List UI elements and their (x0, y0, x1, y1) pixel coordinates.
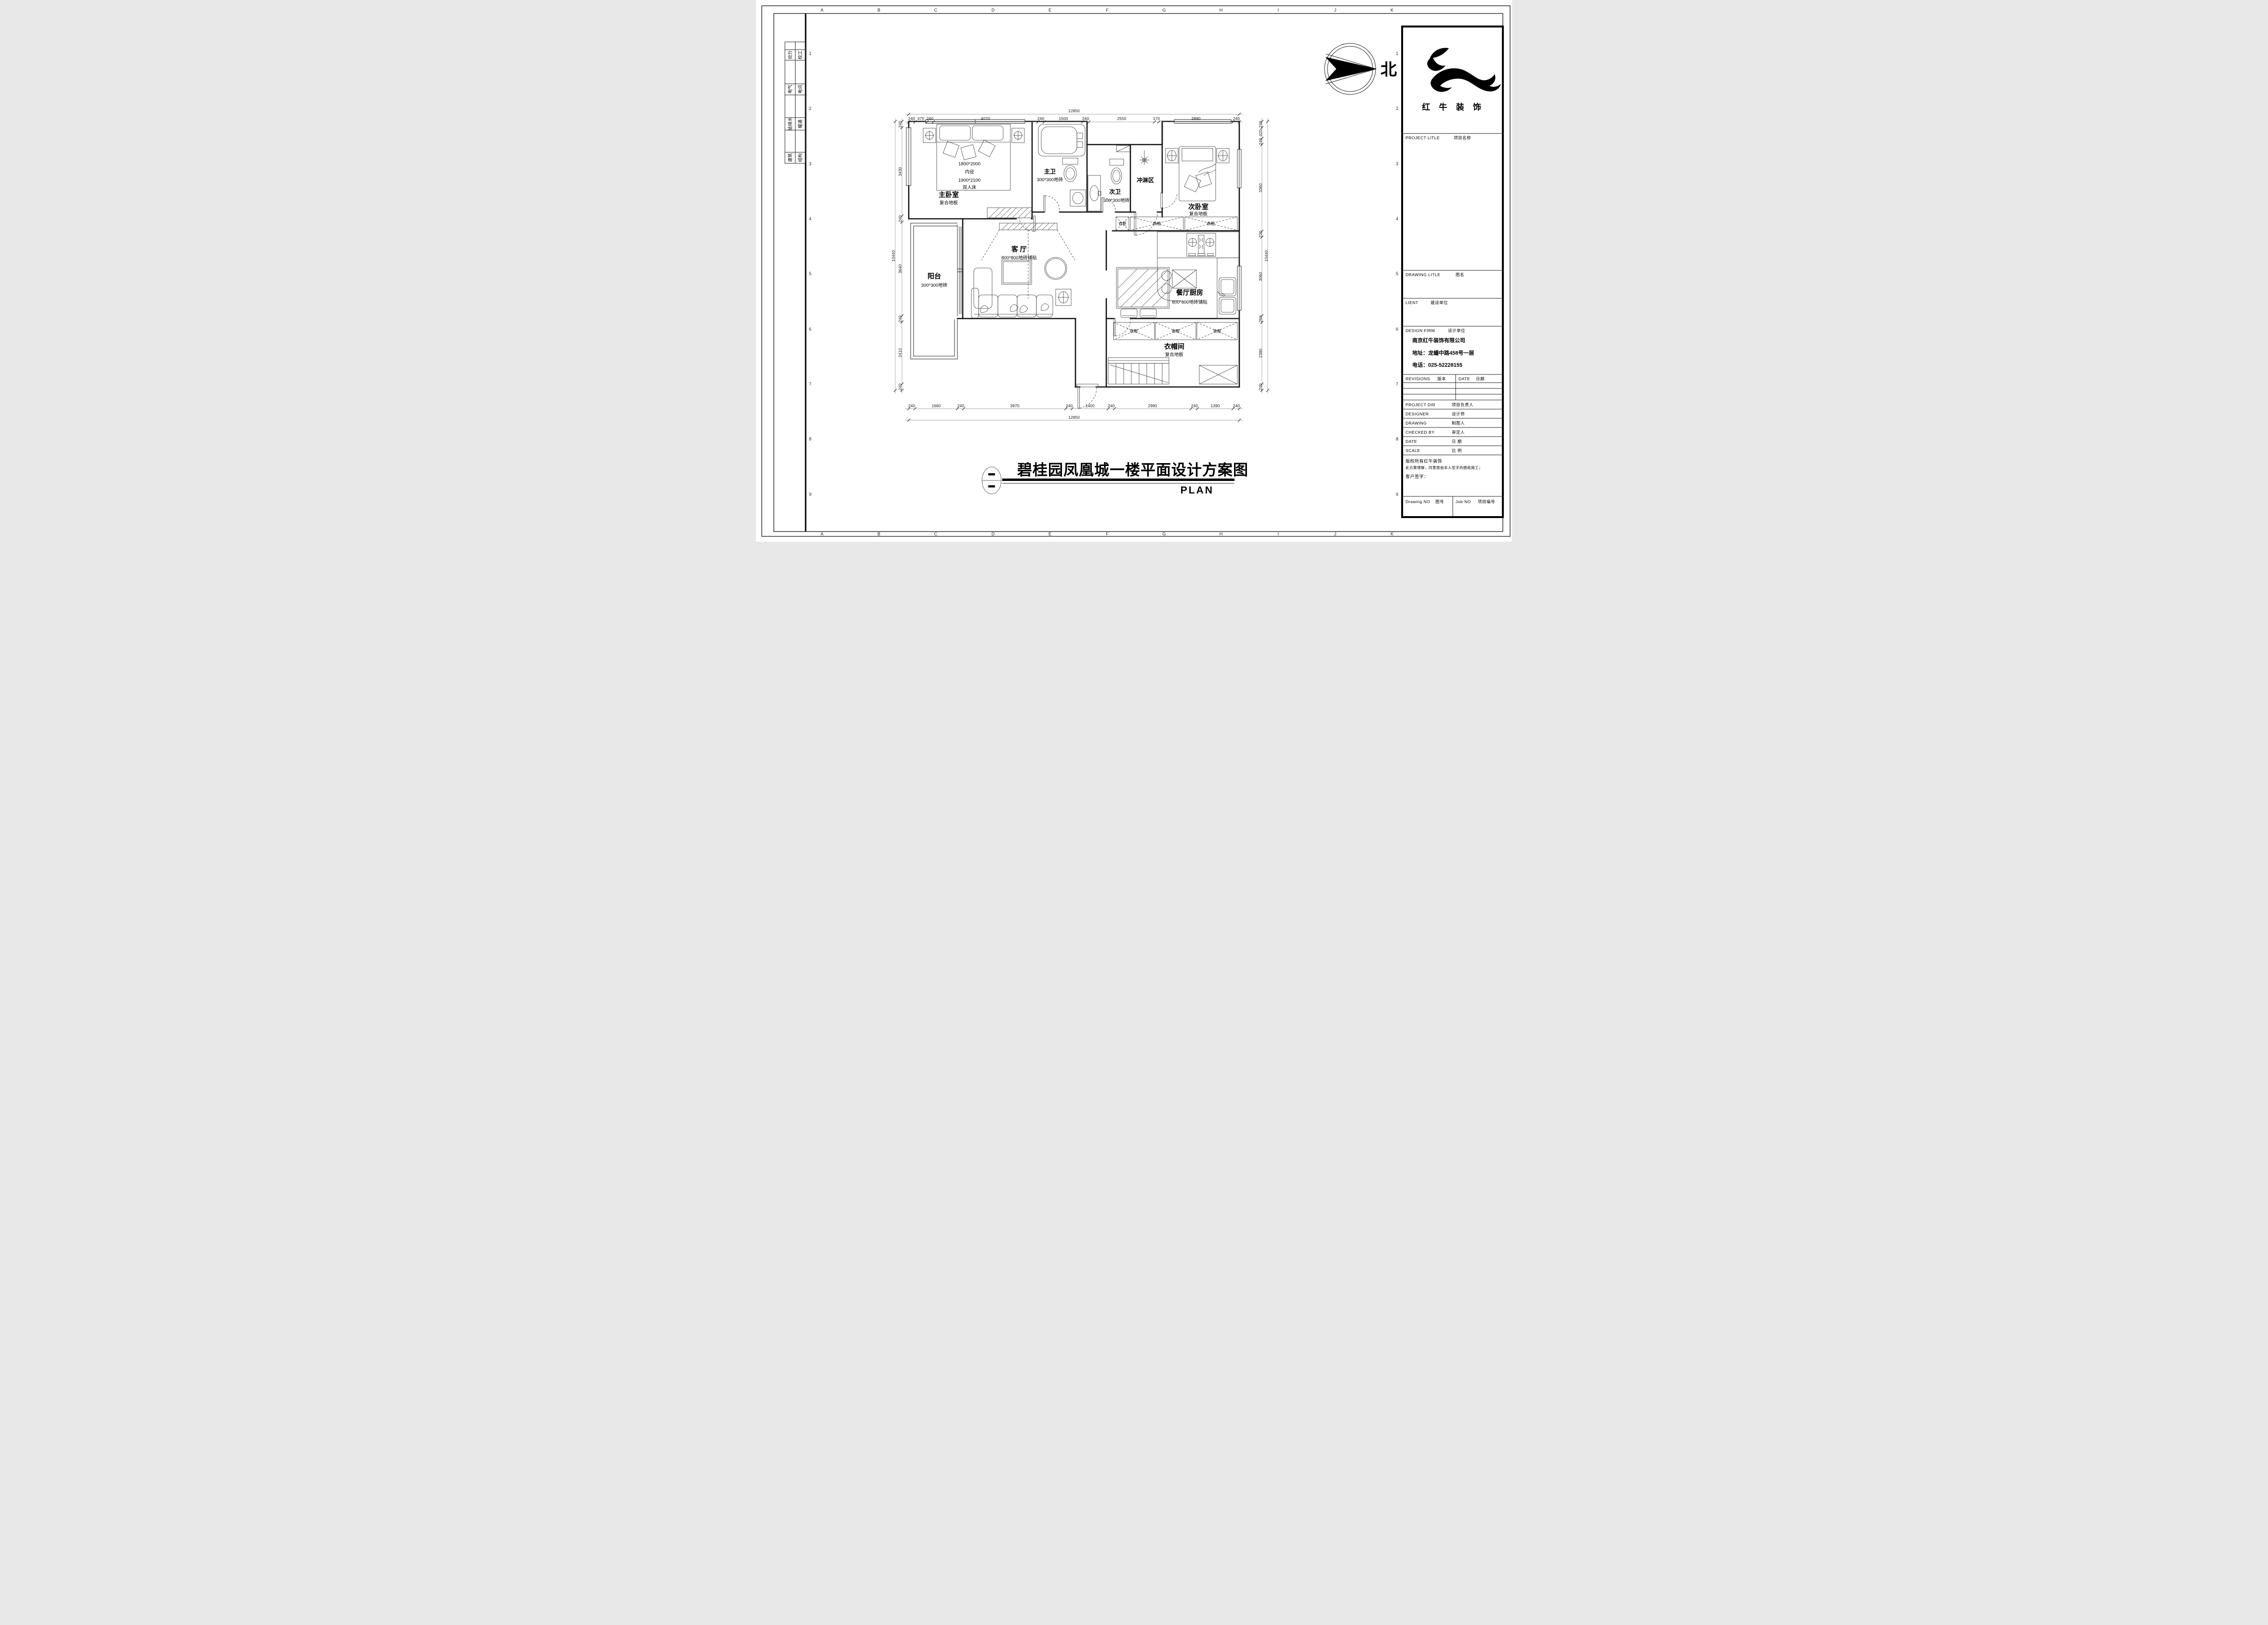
grid-letter: E (1048, 532, 1051, 536)
dim-bottom: 240 (1191, 403, 1198, 408)
round-rug (1045, 257, 1067, 280)
tv-cabinet (981, 223, 1075, 299)
window-master-top (926, 119, 1025, 124)
tb-row-en: SCALE (1406, 448, 1420, 453)
bed-spec: 1800*2000 (958, 161, 981, 167)
tb-drawing-label: DRAWING LITLE (1406, 272, 1440, 277)
vanity-basin (1088, 175, 1101, 211)
dim-top: 470 (917, 116, 924, 121)
door-master-bath (1044, 196, 1060, 212)
balcony-window-wall (957, 225, 963, 316)
grid-letter: F (1106, 8, 1109, 13)
grid-letter: H (1220, 8, 1223, 13)
dim-top-total: 12850 (1068, 108, 1080, 113)
label-living-room-floor: 800*800地砖铺贴 (1001, 255, 1037, 261)
plan-label: PLAN (1180, 485, 1214, 496)
tb-row-en: PROJECT DIR (1406, 402, 1435, 407)
bed-spec: 1900*2100 (958, 178, 981, 183)
tb-copyright2: 此方案理解，同意按由本人签字的图纸施工； (1406, 465, 1483, 470)
nightstand-lamp (1012, 128, 1024, 143)
kitchen-sink (1217, 278, 1236, 314)
stamp-label: 暖通 (797, 120, 803, 128)
label-second-bath: 次卫 (1109, 188, 1121, 195)
dining-chair (1140, 309, 1156, 318)
dim-left: 240 (898, 121, 902, 128)
grid-letter: K (1391, 532, 1393, 536)
wardrobe-row-cloakroom: 衣柜 衣柜 衣柜 (1114, 322, 1237, 340)
tb-row-en: DATE (1406, 439, 1417, 444)
sofa (971, 268, 1053, 318)
tb-firm-label: DESIGN FIRM (1406, 328, 1435, 333)
grid-letter: C (934, 532, 938, 536)
dimensions: 240 470 240 4070 240 1500 240 2550 170 2… (891, 108, 1269, 422)
tb-project-label: PROJECT LITLE (1406, 135, 1440, 140)
toilet-master (1062, 158, 1078, 182)
dim-right: 230 (1258, 231, 1263, 238)
tb-phone: 电话：025-52228155 (1412, 361, 1462, 368)
stamp-label: 动力 (787, 51, 793, 59)
master-wardrobe-cabinet (987, 208, 1032, 218)
window-master-left (906, 128, 911, 186)
sheet-title: 碧桂园凤凰城一楼平面设计方案图 (1017, 462, 1248, 479)
grid-letter: G (1162, 532, 1166, 536)
grid-number: 7 (1396, 382, 1398, 386)
sink-master (1070, 190, 1086, 206)
fridge-box (1172, 270, 1196, 288)
dim-left: 3430 (898, 167, 902, 176)
grid-number: 4 (809, 216, 811, 221)
tb-drawing-no-label: Drawing NO (1406, 499, 1430, 504)
tb-company: 南京红牛装饰有限公司 (1412, 337, 1465, 344)
grid-letter: H (1220, 532, 1223, 536)
coffee-table (1002, 260, 1032, 284)
grid-letter: D (992, 532, 995, 536)
dim-left: 240 (898, 215, 902, 222)
nightstand-lamp (1166, 148, 1178, 163)
void-box (1199, 365, 1237, 384)
grid-letter: G (1162, 8, 1166, 13)
wardrobe-label: 衣柜 (1129, 329, 1138, 333)
dim-left: 240 (898, 384, 902, 390)
bed-second (1179, 147, 1216, 201)
north-compass-icon: 北 (1325, 43, 1397, 94)
bathtub (1038, 124, 1085, 156)
door-bedroom2 (1161, 193, 1177, 208)
dim-bottom: 2990 (1148, 403, 1157, 408)
grid-letter: E (1048, 8, 1051, 13)
room-labels: 主卧室 复合地板 主卫 300*300地砖 次卫 300*300地砖 冲淋区 次… (921, 168, 1208, 358)
label-master-bath-floor: 300*300地砖 (1037, 177, 1063, 183)
grid-number: 1 (1396, 51, 1398, 56)
dim-right: 240 (1258, 384, 1263, 390)
stamp-label: 校工 (797, 51, 803, 59)
dim-right: 260 (1258, 316, 1263, 322)
dim-bottom: 240 (1233, 403, 1240, 408)
tb-date-cn: 日期 (1476, 376, 1485, 381)
label-kitchen-dining: 餐厅厨房 (1176, 289, 1203, 296)
tb-address: 地址：龙蟠中路458号一层 (1412, 349, 1474, 356)
grid-letter: A (821, 532, 823, 536)
drawing-title-bar: 碧桂园凤凰城一楼平面设计方案图 PLAN (982, 462, 1248, 496)
floor-plan-drawing: 动力 校工 电气 电讯 给排水 暖通 建筑 结构 A B C D E F G H… (756, 0, 1512, 542)
tb-date-label: DATE (1459, 376, 1470, 381)
dim-bottom: 1400 (1086, 403, 1095, 408)
floor-plan: 1800*2000 内径 1900*2100 双人床 (891, 108, 1269, 422)
wardrobe-label: 衣柜 (1118, 221, 1127, 226)
title-block: 红 牛 装 饰 PROJECT LITLE 项目名称 DRAWING LITLE… (1402, 27, 1503, 517)
grid-number: 4 (1396, 216, 1398, 221)
furniture: 1800*2000 内径 1900*2100 双人床 (923, 124, 1239, 384)
label-second-bedroom-floor: 复合地板 (1189, 211, 1208, 217)
bed-spec: 双人床 (963, 185, 977, 190)
label-master-bath: 主卫 (1044, 168, 1056, 175)
wardrobe-label: 衣柜 (1171, 329, 1180, 333)
dim-right: 420 (1258, 130, 1263, 136)
grid-letters-top: A B C D E F G H I J K (821, 8, 1393, 13)
stamp-label: 结构 (797, 153, 803, 162)
label-master-bedroom: 主卧室 (939, 191, 959, 199)
wardrobe-label: 衣柜 (1213, 329, 1221, 333)
dim-top: 240 (1233, 116, 1240, 121)
door-cloakroom (1114, 319, 1130, 336)
dim-right: 2390 (1258, 348, 1263, 358)
tb-row-cn: 制图人 (1452, 421, 1465, 426)
dim-bottom-total: 12850 (1068, 415, 1080, 420)
staircase (1108, 358, 1169, 384)
tb-row-cn: 审定人 (1452, 430, 1465, 435)
dim-top: 170 (1153, 116, 1160, 121)
dim-right: 240 (1258, 138, 1263, 145)
tb-row-en: DESIGNER (1406, 412, 1429, 416)
grid-letter: C (934, 8, 938, 13)
tb-job-no-cn: 项目编号 (1478, 499, 1495, 504)
label-shower-area: 冲淋区 (1137, 176, 1154, 184)
grid-letter: B (877, 8, 880, 13)
north-label: 北 (1380, 61, 1397, 79)
duct-shaft (1116, 146, 1130, 152)
wardrobe-label: 衣柜 (1207, 221, 1215, 226)
label-second-bath-floor: 300*300地砖 (1103, 198, 1130, 203)
grid-number: 2 (809, 106, 811, 111)
grid-number: 6 (809, 327, 811, 332)
grid-number: 3 (1396, 161, 1398, 166)
grid-number: 6 (1396, 327, 1398, 332)
nightstand-lamp (923, 128, 936, 143)
dim-top: 240 (1082, 116, 1089, 121)
label-living-room: 客 厅 (1011, 245, 1027, 253)
dim-top: 240 (908, 116, 915, 121)
grid-letter: A (821, 8, 823, 13)
label-second-bedroom: 次卧室 (1188, 203, 1208, 211)
grid-number: 7 (809, 382, 811, 386)
grid-letter: I (1278, 8, 1279, 13)
tb-revisions-cn: 版本 (1437, 376, 1446, 381)
balcony-outline (911, 223, 957, 359)
label-balcony-floor: 300*300地砖 (921, 282, 948, 288)
tb-firm-cn: 设计单位 (1448, 328, 1465, 333)
tb-row-cn: 项目负责人 (1452, 402, 1473, 407)
dim-left-total: 10440 (891, 250, 896, 262)
grid-letter: I (1278, 532, 1279, 536)
tb-project-cn: 项目名称 (1454, 135, 1471, 140)
tb-client-cn: 建设单位 (1431, 300, 1448, 305)
tb-row-en: CHECKED BY (1406, 430, 1434, 435)
dim-bottom: 1390 (1211, 403, 1220, 408)
door-master-bedroom (1019, 216, 1035, 231)
tb-copyright1: 版权所有红牛装饰 (1406, 458, 1442, 464)
dining-table (1116, 267, 1169, 308)
dim-bottom: 240 (1108, 403, 1114, 408)
dim-bottom: 1660 (932, 403, 941, 408)
side-table-lamp (1056, 289, 1071, 306)
label-balcony: 阳台 (928, 272, 941, 280)
tb-row-cn: 日 期 (1452, 439, 1462, 444)
dim-bottom: 240 (957, 403, 964, 408)
dim-top: 2550 (1117, 116, 1127, 121)
toilet-second (1110, 159, 1124, 184)
label-kitchen-dining-floor: 800*800地砖铺贴 (1172, 299, 1207, 305)
stamp-label: 电气 (787, 85, 793, 93)
dim-left: 3640 (898, 264, 902, 273)
dim-bottom: 3970 (1010, 403, 1020, 408)
grid-letter: K (1391, 8, 1393, 13)
grid-number: 2 (1396, 106, 1398, 111)
tb-client-label: LIENT (1406, 300, 1419, 305)
grid-letter: J (1334, 8, 1337, 13)
dim-left: 240 (898, 316, 902, 322)
dim-top: 240 (927, 116, 933, 121)
master-bed: 1800*2000 内径 1900*2100 双人床 (937, 124, 1010, 190)
grid-number: 5 (1396, 271, 1398, 276)
gas-stove (1187, 233, 1216, 256)
grid-number: 8 (1396, 437, 1398, 441)
tb-revisions-label: REVISIONS (1406, 376, 1430, 381)
dining-chair (1121, 309, 1137, 318)
grid-letter: J (1334, 532, 1337, 536)
grid-letters-bottom: A B C D E F G H I J K (821, 532, 1393, 536)
tb-row-cn: 设计师 (1452, 412, 1465, 416)
tb-row-cn: 比 例 (1452, 448, 1462, 453)
grid-numbers: 1 2 3 4 5 6 7 8 9 1 2 3 4 5 6 7 8 9 (809, 51, 1398, 497)
dim-right: 240 (1258, 121, 1263, 128)
dim-top: 240 (1037, 116, 1044, 121)
nightstand-lamp (1217, 148, 1229, 163)
window-bedroom2-top (1174, 119, 1231, 124)
label-cloakroom-floor: 复合地板 (1165, 352, 1184, 358)
tb-sign: 客户签字： (1406, 474, 1429, 479)
discipline-stamp-strip: 动力 校工 电气 电讯 给排水 暖通 建筑 结构 (785, 42, 806, 163)
stamp-label: 建筑 (787, 153, 793, 162)
grid-letter: D (992, 8, 995, 13)
tb-drawing-cn: 图名 (1456, 272, 1464, 277)
stamp-label: 给排水 (787, 117, 793, 130)
dim-right: 3360 (1258, 183, 1263, 192)
sheet-frame: 动力 校工 电气 电讯 给排水 暖通 建筑 结构 A B C D E F G H… (762, 6, 1510, 536)
grid-number: 8 (809, 437, 811, 441)
grid-letter: B (877, 532, 880, 536)
tb-row-en: DRAWING (1406, 421, 1427, 426)
grid-letter: F (1106, 532, 1109, 536)
stamp-label: 电讯 (797, 85, 803, 93)
dim-top: 2890 (1192, 116, 1201, 121)
tb-drawing-no-cn: 图号 (1435, 499, 1444, 504)
grid-number: 1 (809, 51, 811, 56)
bed-spec: 内径 (965, 169, 974, 175)
dim-top: 4070 (981, 116, 990, 121)
dim-right: 3060 (1258, 272, 1263, 281)
grid-number: 3 (809, 161, 811, 166)
tb-job-no-label: Job NO (1456, 499, 1471, 504)
drawing-sheet: 动力 校工 电气 电讯 给排水 暖通 建筑 结构 A B C D E F G H… (756, 0, 1512, 542)
grid-number: 9 (809, 492, 811, 497)
dim-right-total: 10440 (1264, 250, 1269, 262)
label-cloakroom: 衣帽间 (1164, 343, 1184, 350)
grid-number: 5 (809, 271, 811, 276)
dim-left: 2410 (898, 348, 902, 357)
wardrobe-label: 衣柜 (1153, 221, 1161, 226)
shower-head-icon (1140, 150, 1149, 165)
dim-bottom: 240 (1066, 403, 1073, 408)
label-master-bedroom-floor: 复合地板 (940, 200, 958, 206)
dim-top: 1500 (1059, 116, 1068, 121)
dim-bottom: 240 (908, 403, 915, 408)
logo-text: 红 牛 装 饰 (1422, 102, 1485, 112)
company-logo-icon: 红 牛 装 饰 (1422, 48, 1501, 112)
grid-number: 9 (1396, 492, 1398, 497)
window-bedroom2-right (1237, 149, 1242, 188)
